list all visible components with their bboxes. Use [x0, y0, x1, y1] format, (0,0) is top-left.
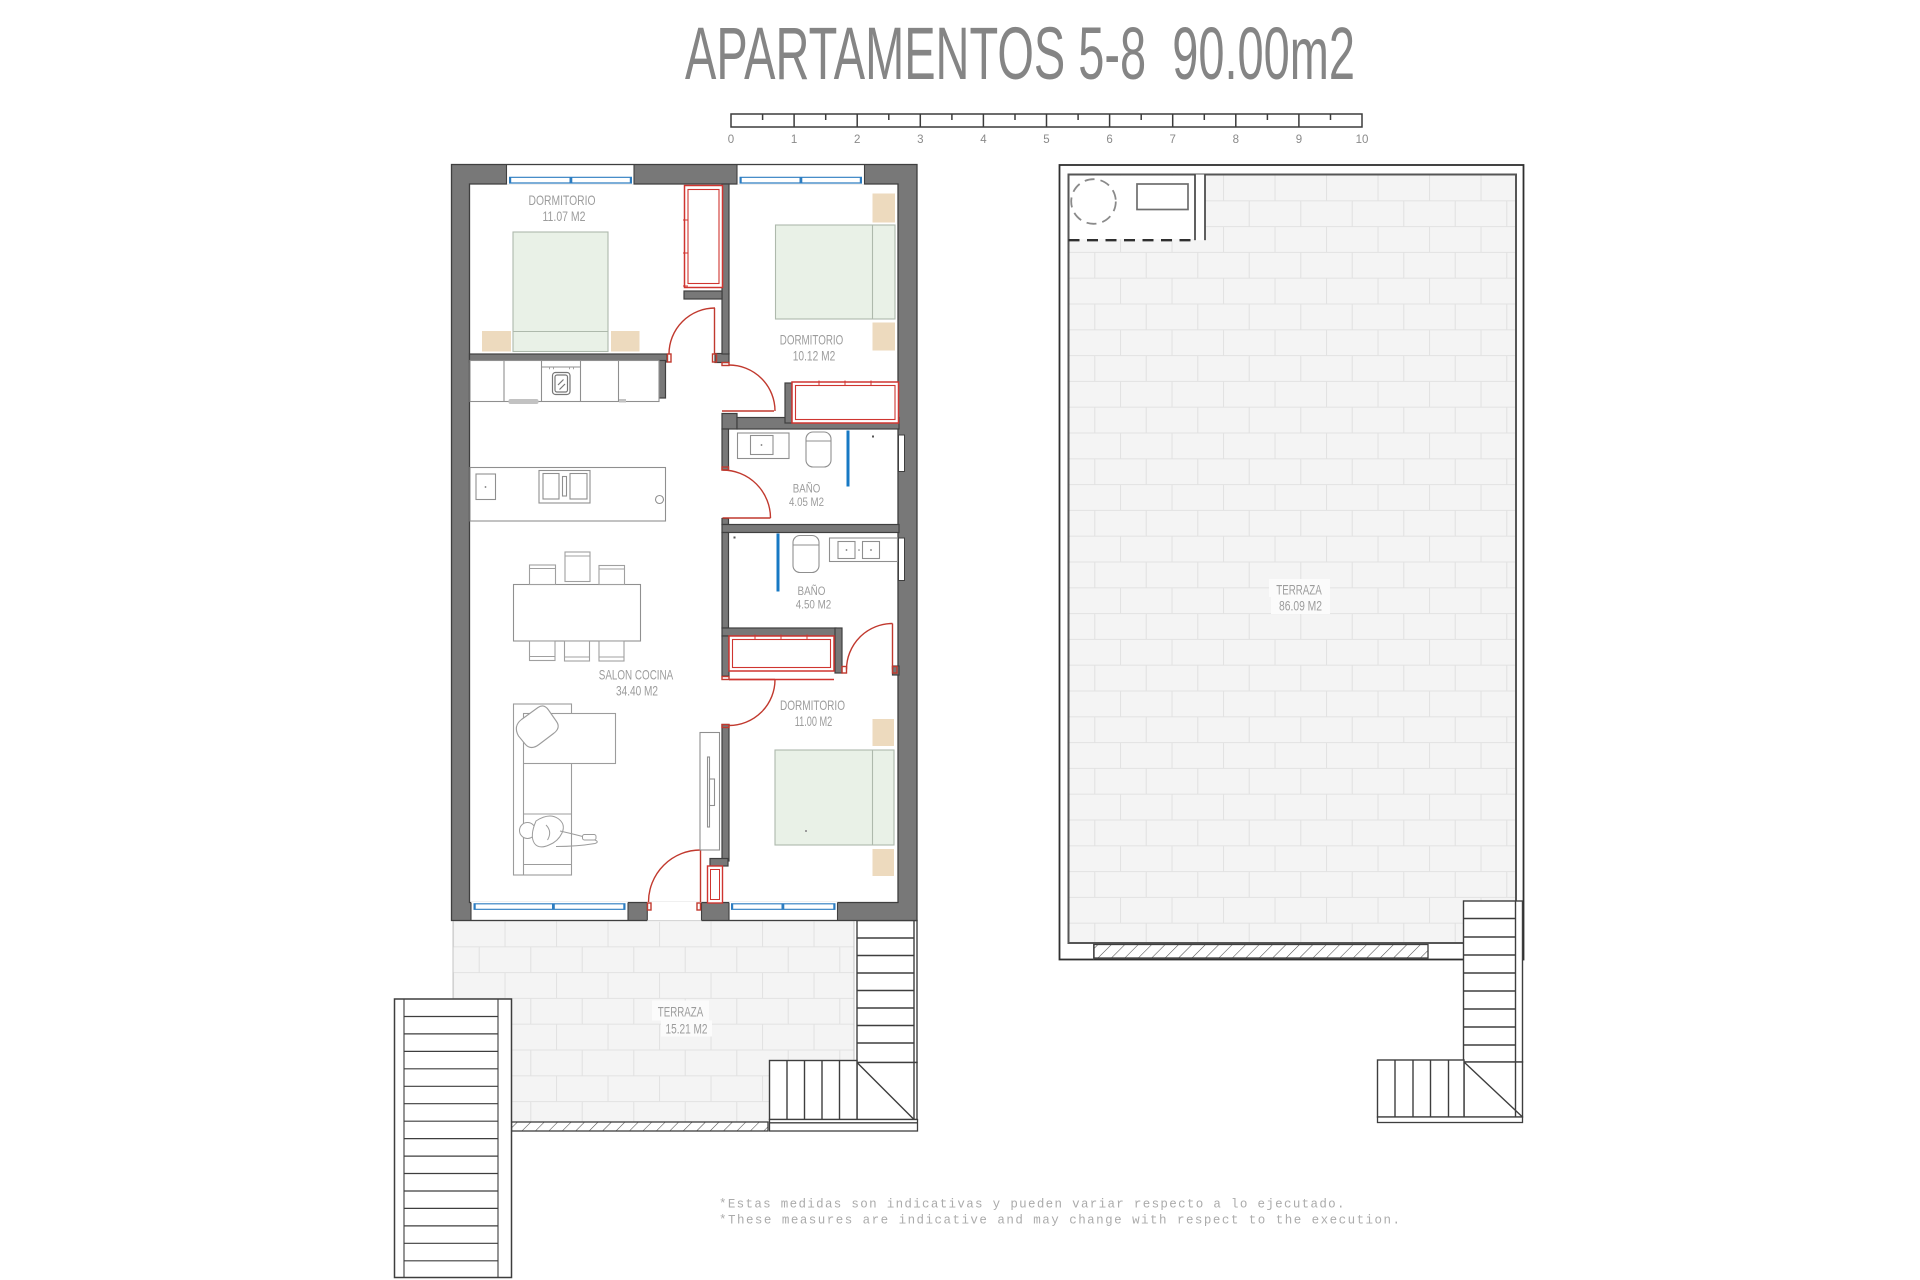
svg-text:6: 6	[1106, 134, 1112, 146]
svg-text:8: 8	[1233, 134, 1239, 146]
svg-text:5: 5	[1043, 134, 1049, 146]
svg-text:3: 3	[917, 134, 923, 146]
svg-text:APARTAMENTOS 5-8 90.00m2: APARTAMENTOS 5-8 90.00m2	[685, 12, 1355, 95]
svg-text:2: 2	[854, 134, 860, 146]
svg-text:DORMITORIO: DORMITORIO	[780, 332, 844, 348]
svg-text:*Estas medidas son indicativas: *Estas medidas son indicativas y pueden …	[719, 1198, 1344, 1212]
svg-text:TERRAZA: TERRAZA	[658, 1004, 704, 1020]
svg-text:TERRAZA: TERRAZA	[1276, 582, 1322, 598]
svg-text:DORMITORIO: DORMITORIO	[529, 192, 596, 208]
svg-text:4.50 M2: 4.50 M2	[796, 598, 832, 612]
svg-text:1: 1	[791, 134, 797, 146]
svg-text:11.00 M2: 11.00 M2	[795, 713, 833, 729]
svg-text:SALON COCINA: SALON COCINA	[599, 667, 674, 683]
svg-text:7: 7	[1169, 134, 1175, 146]
svg-text:86.09 M2: 86.09 M2	[1279, 598, 1322, 614]
svg-text:BAÑO: BAÑO	[793, 482, 821, 496]
svg-text:DORMITORIO: DORMITORIO	[780, 697, 845, 713]
svg-text:BAÑO: BAÑO	[798, 584, 826, 598]
svg-text:*These measures are indicative: *These measures are indicative and may c…	[719, 1214, 1400, 1228]
svg-text:4.05 M2: 4.05 M2	[789, 495, 824, 509]
svg-text:9: 9	[1296, 134, 1302, 146]
svg-text:34.40 M2: 34.40 M2	[616, 683, 658, 699]
svg-text:10: 10	[1356, 134, 1369, 146]
svg-text:4: 4	[980, 134, 987, 146]
svg-text:0: 0	[728, 134, 734, 146]
svg-text:15.21 M2: 15.21 M2	[666, 1021, 708, 1037]
svg-text:11.07 M2: 11.07 M2	[543, 208, 586, 224]
svg-text:10.12 M2: 10.12 M2	[793, 348, 836, 364]
